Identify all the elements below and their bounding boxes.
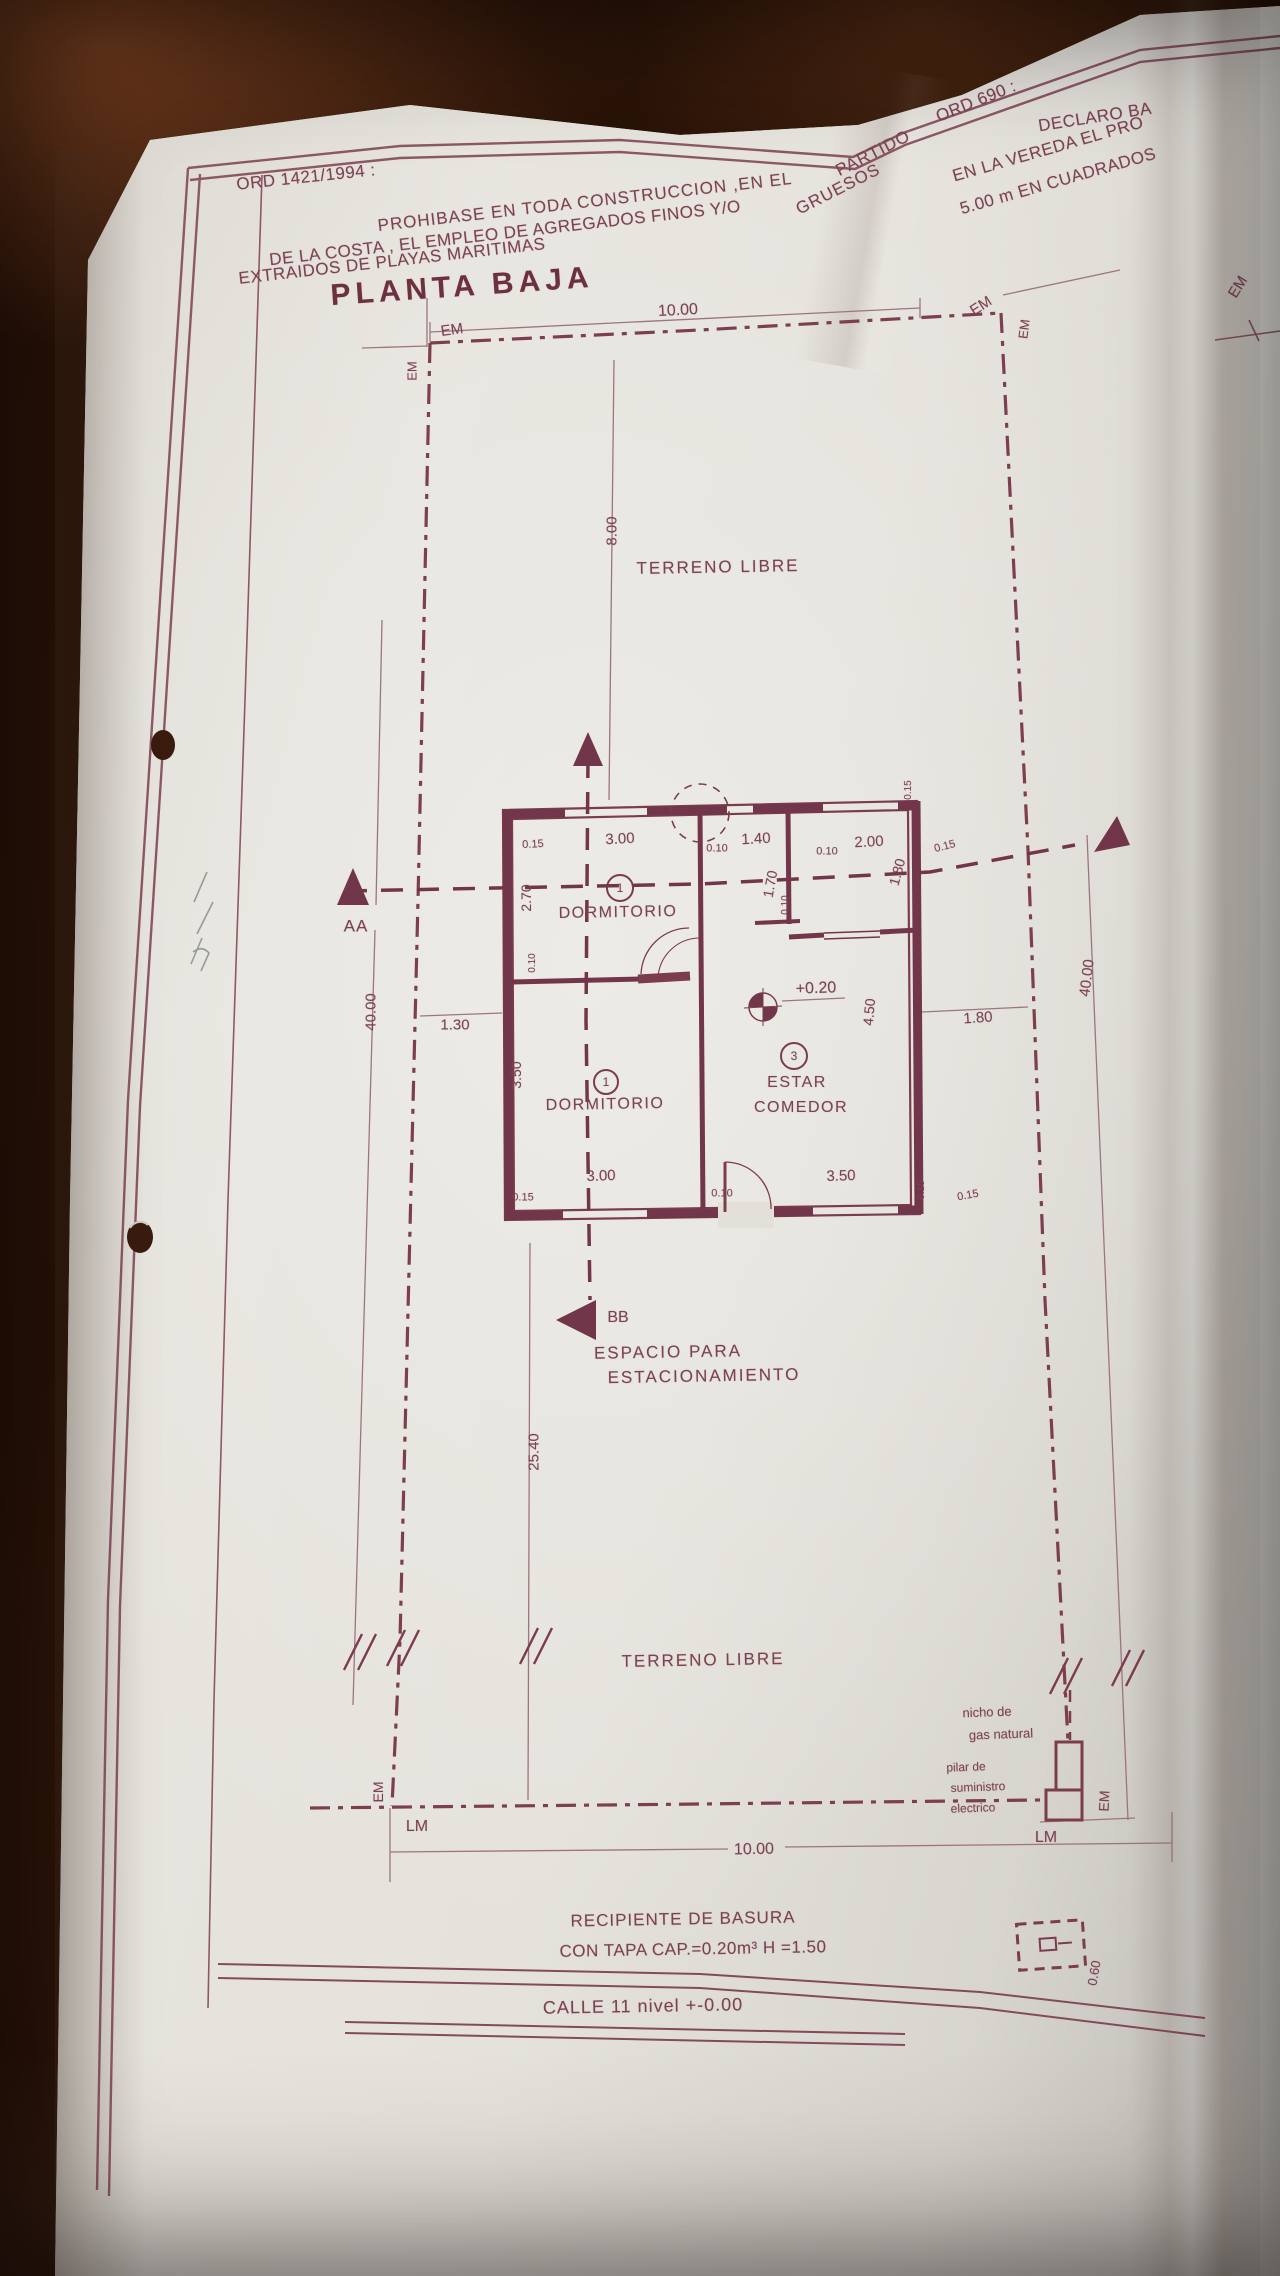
punch-hole [151, 730, 175, 760]
trash-receptacle-symbol [1016, 1920, 1085, 1970]
room-number-circle [607, 875, 633, 901]
photo-of-floor-plan: ORD 1421/1994 :PROHIBASE EN TODA CONSTRU… [0, 0, 1280, 2276]
floor-plan-drawing [0, 0, 1280, 2276]
plan-symbols [344, 784, 1144, 1970]
break-marks [344, 1628, 1144, 1694]
sheet-border [97, 36, 1280, 2196]
section-arrow-bb-bottom [556, 1300, 596, 1340]
street-lines [218, 1964, 1205, 2045]
section-arrow-aa-right [1094, 816, 1130, 852]
gas-pillar-symbol [1046, 1690, 1082, 1820]
room-number-circle [594, 1070, 618, 1094]
section-arrows [337, 732, 1130, 1340]
section-line-aa [345, 845, 1075, 891]
dimension-lines [353, 270, 1172, 1882]
house-walls [503, 801, 920, 1220]
interior-walls [512, 810, 918, 1213]
room-number-circle [781, 1043, 807, 1069]
section-arrow-aa-left [337, 868, 369, 905]
section-arrow-bb-top [573, 732, 603, 766]
section-lines [345, 756, 1075, 1300]
pencil-scribbles [191, 872, 213, 971]
house-outline [503, 801, 920, 1220]
level-symbol [744, 988, 782, 1026]
lot-boundary [310, 313, 1068, 1808]
